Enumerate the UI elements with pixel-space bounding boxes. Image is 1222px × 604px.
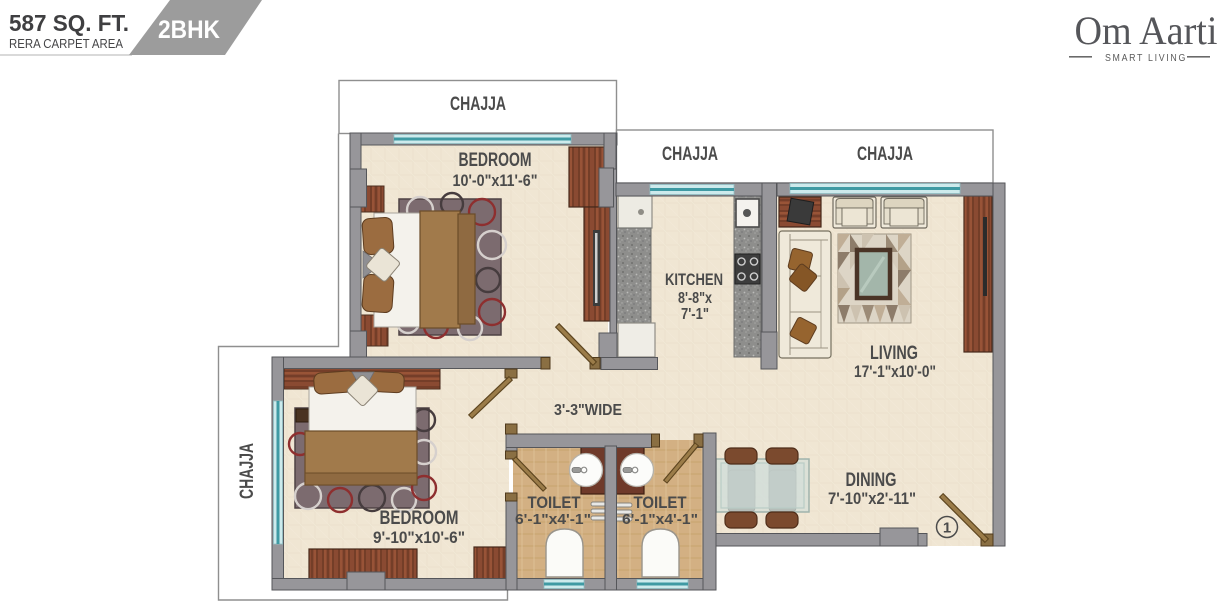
svg-text:587 SQ. FT.: 587 SQ. FT. [9, 10, 129, 36]
svg-text:1: 1 [943, 520, 951, 537]
svg-text:10'-0"x11'-6": 10'-0"x11'-6" [453, 171, 538, 190]
svg-text:7'-1": 7'-1" [681, 306, 709, 323]
svg-text:2BHK: 2BHK [158, 16, 220, 44]
svg-text:17'-1"x10'-0": 17'-1"x10'-0" [854, 362, 936, 381]
svg-text:SMART LIVING: SMART LIVING [1105, 52, 1187, 64]
svg-text:CHAJJA: CHAJJA [857, 144, 913, 165]
svg-text:CHAJJA: CHAJJA [662, 144, 718, 165]
svg-text:Om Aarti: Om Aarti [1075, 8, 1218, 53]
svg-text:TOILET: TOILET [528, 493, 582, 512]
svg-text:3'-3"WIDE: 3'-3"WIDE [554, 402, 622, 419]
svg-text:6'-1"x4'-1": 6'-1"x4'-1" [515, 511, 591, 528]
svg-text:LIVING: LIVING [870, 343, 918, 364]
svg-text:BEDROOM: BEDROOM [380, 508, 459, 529]
svg-text:9'-10"x10'-6": 9'-10"x10'-6" [373, 528, 465, 547]
svg-text:6'-1"x4'-1": 6'-1"x4'-1" [622, 511, 698, 528]
svg-text:DINING: DINING [846, 470, 897, 491]
svg-text:7'-10"x2'-11": 7'-10"x2'-11" [828, 489, 916, 508]
svg-text:CHAJJA: CHAJJA [237, 443, 258, 499]
svg-text:BEDROOM: BEDROOM [459, 150, 532, 171]
svg-text:CHAJJA: CHAJJA [450, 94, 506, 115]
svg-text:TOILET: TOILET [634, 493, 688, 512]
svg-text:RERA CARPET AREA: RERA CARPET AREA [9, 36, 123, 51]
svg-text:KITCHEN: KITCHEN [665, 270, 723, 289]
svg-text:8'-8"x: 8'-8"x [678, 290, 712, 307]
